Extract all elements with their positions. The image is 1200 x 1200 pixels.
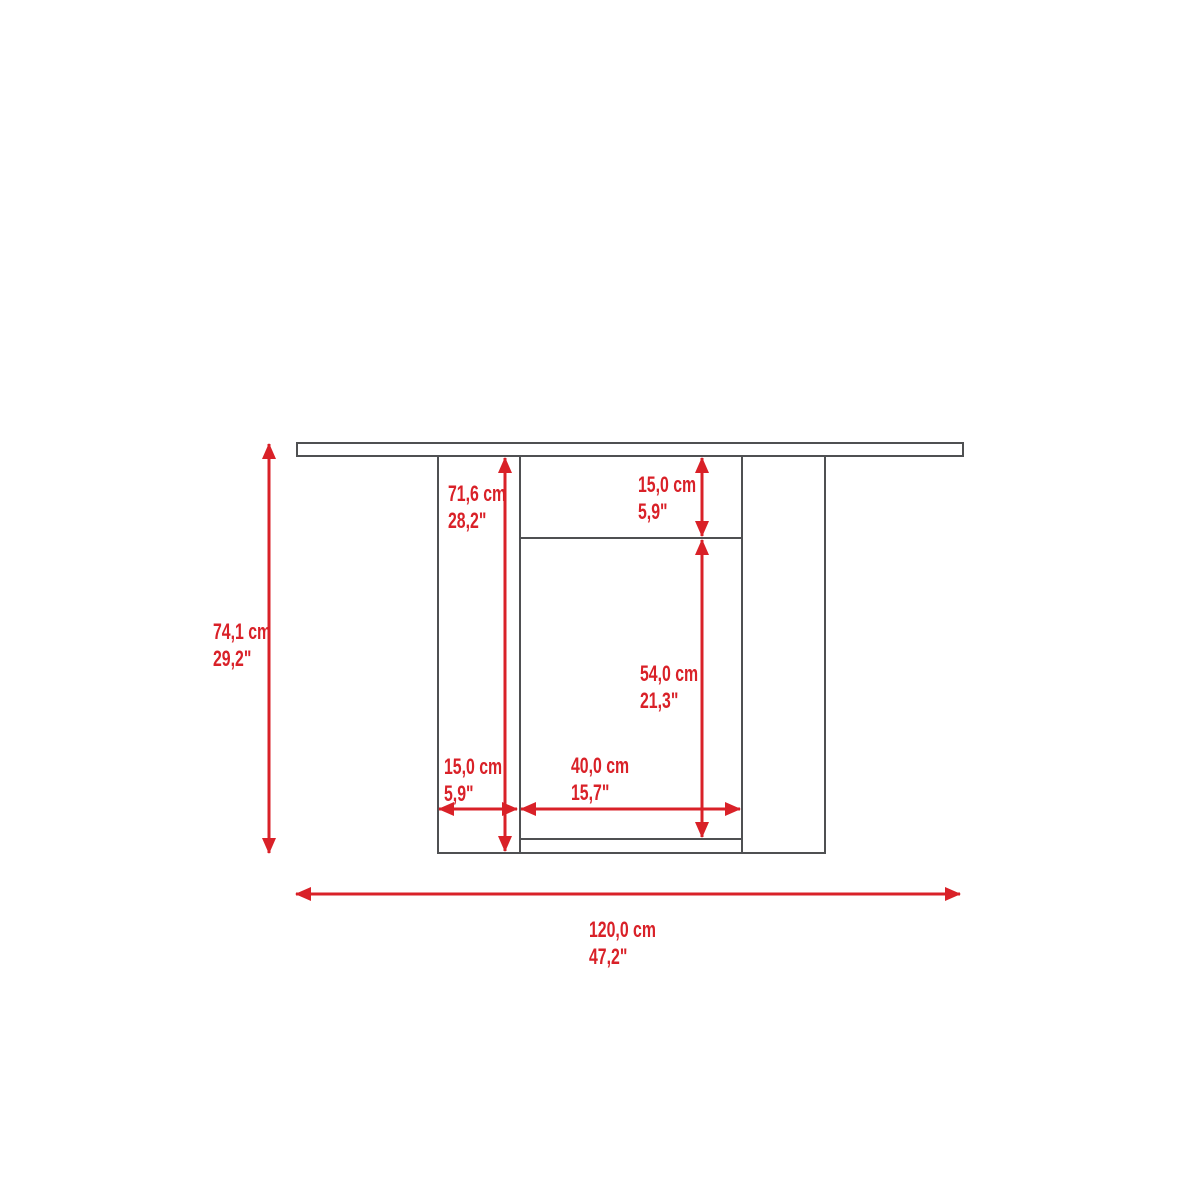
overall-width-cm: 120,0 cm [589, 916, 656, 943]
overall-width-label: 120,0 cm 47,2" [589, 916, 656, 970]
side-panel-width-inch: 5,9" [444, 780, 502, 807]
opening-width-inch: 15,7" [571, 779, 629, 806]
apron-height-label: 15,0 cm 5,9" [638, 471, 696, 525]
overall-height-inch: 29,2" [213, 645, 271, 672]
panel-height-inch: 28,2" [448, 507, 506, 534]
side-panel-width-cm: 15,0 cm [444, 753, 502, 780]
overall-height-cm: 74,1 cm [213, 618, 271, 645]
tabletop-outline [297, 443, 963, 456]
panel-height-cm: 71,6 cm [448, 480, 506, 507]
apron-height-inch: 5,9" [638, 498, 696, 525]
apron-height-cm: 15,0 cm [638, 471, 696, 498]
opening-height-inch: 21,3" [640, 687, 698, 714]
opening-height-label: 54,0 cm 21,3" [640, 660, 698, 714]
dimension-drawing-canvas [0, 0, 1200, 1200]
dimension-diagram: 74,1 cm 29,2" 71,6 cm 28,2" 15,0 cm 5,9"… [0, 0, 1200, 1200]
opening-width-label: 40,0 cm 15,7" [571, 752, 629, 806]
panel-height-label: 71,6 cm 28,2" [448, 480, 506, 534]
dimension-arrows [269, 444, 960, 894]
furniture-outline [297, 443, 963, 853]
overall-height-label: 74,1 cm 29,2" [213, 618, 271, 672]
opening-height-cm: 54,0 cm [640, 660, 698, 687]
overall-width-inch: 47,2" [589, 943, 656, 970]
opening-width-cm: 40,0 cm [571, 752, 629, 779]
side-panel-width-label: 15,0 cm 5,9" [444, 753, 502, 807]
